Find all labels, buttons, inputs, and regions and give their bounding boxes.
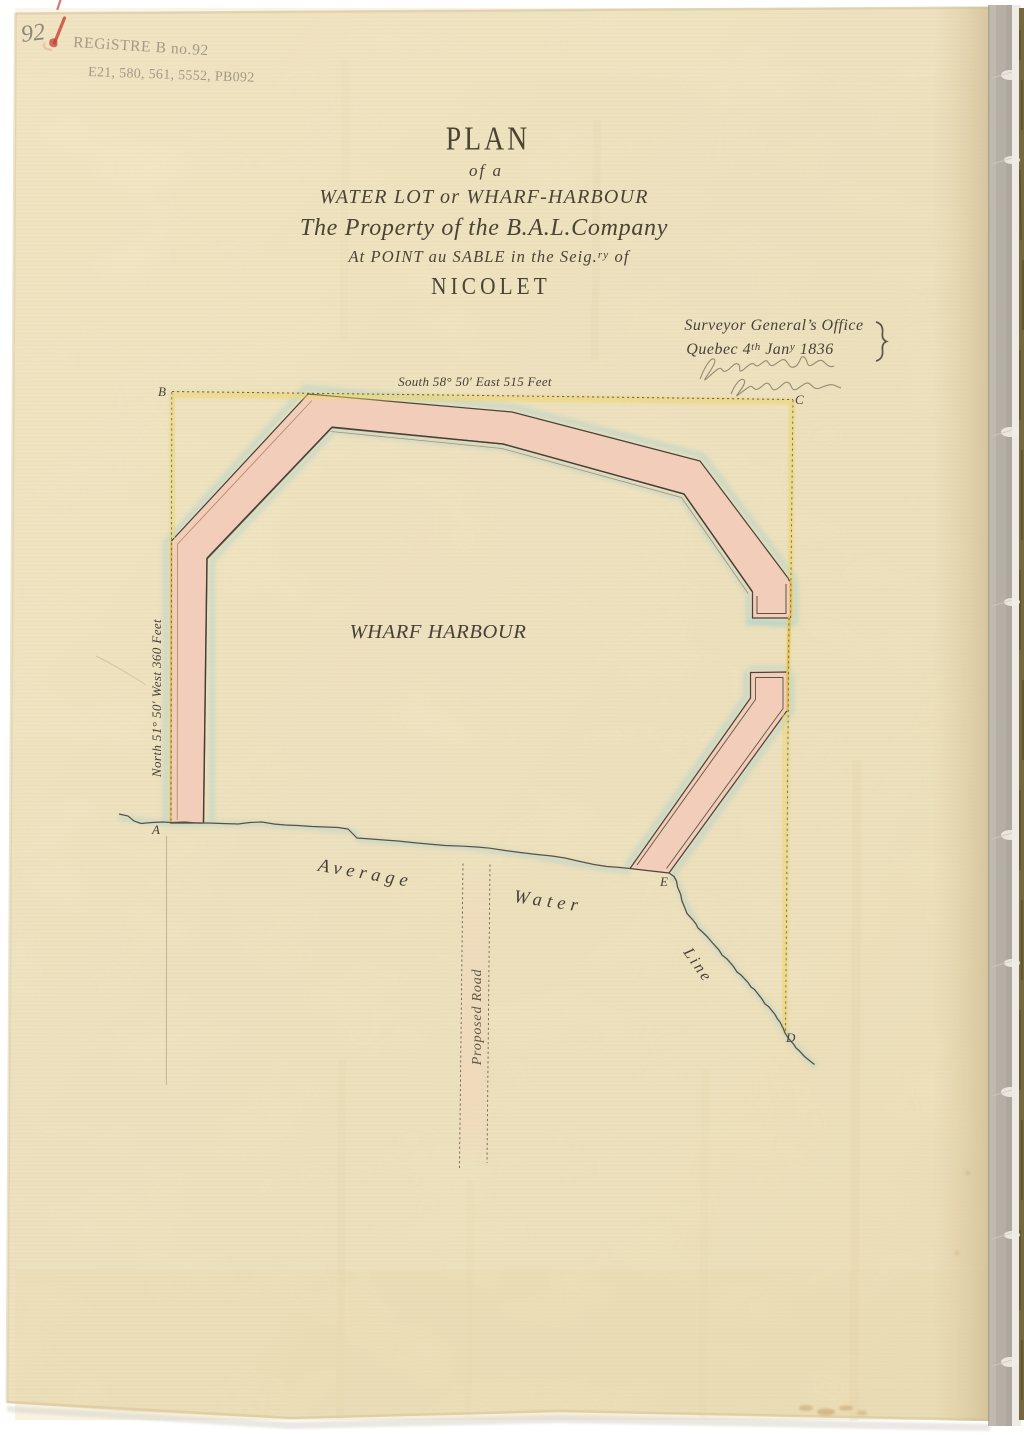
svg-text:A: A	[151, 822, 160, 837]
svg-text:92: 92	[20, 19, 47, 48]
svg-text:WHARF HARBOUR: WHARF HARBOUR	[350, 621, 527, 643]
svg-text:At POINT au SABLE in the Seig.: At POINT au SABLE in the Seig.ry of	[347, 247, 630, 266]
svg-text:Surveyor General’s Office: Surveyor General’s Office	[684, 317, 863, 334]
svg-text:of a: of a	[469, 161, 503, 180]
svg-text:PLAN: PLAN	[446, 119, 531, 157]
svg-text:D: D	[785, 1030, 796, 1045]
svg-text:WATER LOT or WHARF-HARBOUR: WATER LOT or WHARF-HARBOUR	[319, 186, 648, 208]
svg-text:Proposed Road: Proposed Road	[470, 969, 485, 1067]
svg-text:North 51° 50′ West 360 Feet: North 51° 50′ West 360 Feet	[149, 619, 164, 778]
svg-text:The Property of the B.A.L.Comp: The Property of the B.A.L.Company	[300, 215, 668, 241]
svg-text:South 58° 50′ East 515 Feet: South 58° 50′ East 515 Feet	[398, 374, 552, 389]
svg-text:NICOLET: NICOLET	[431, 272, 551, 300]
svg-text:C: C	[795, 392, 804, 407]
svg-text:Quebec 4th Jany 1836: Quebec 4th Jany 1836	[686, 341, 833, 358]
svg-text:B: B	[158, 384, 166, 399]
svg-text:E: E	[659, 874, 668, 889]
